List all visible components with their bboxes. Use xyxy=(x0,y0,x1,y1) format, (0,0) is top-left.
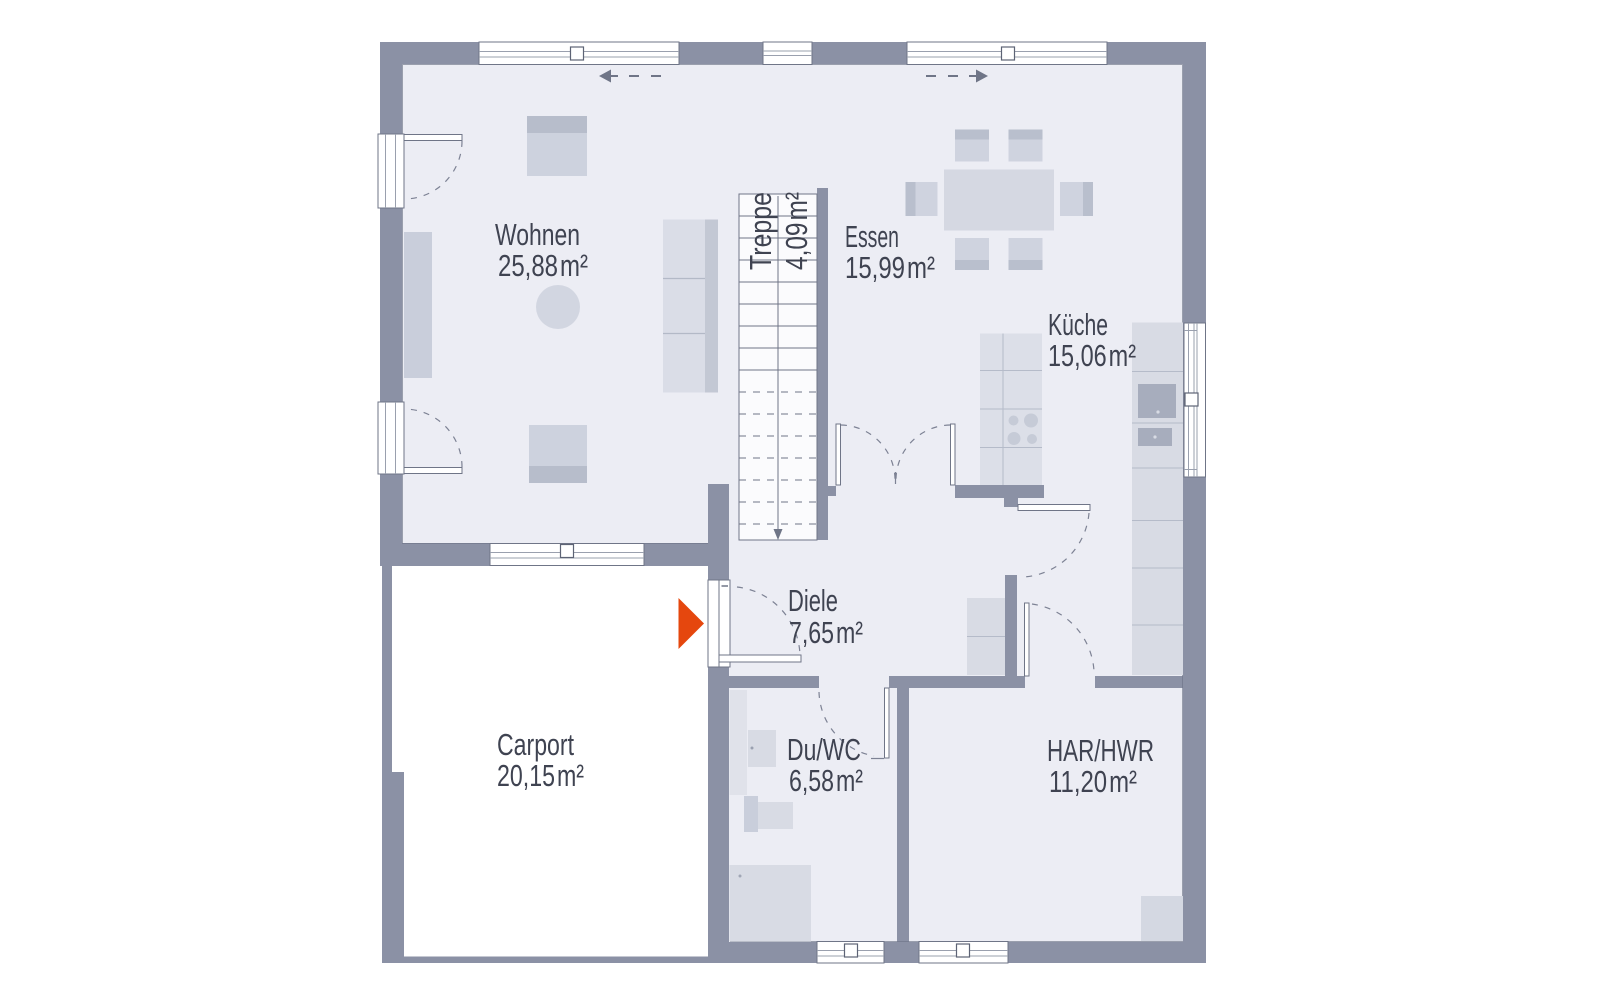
svg-text:HAR/HWR: HAR/HWR xyxy=(1047,733,1154,768)
svg-text:20,15 m²: 20,15 m² xyxy=(497,758,584,793)
svg-text:7,65 m²: 7,65 m² xyxy=(789,615,863,650)
svg-text:4,09 m²: 4,09 m² xyxy=(779,192,814,270)
svg-text:Treppe: Treppe xyxy=(743,192,778,270)
svg-text:25,88 m²: 25,88 m² xyxy=(498,248,588,283)
svg-text:Du/WC: Du/WC xyxy=(787,732,861,767)
svg-text:6,58 m²: 6,58 m² xyxy=(789,763,863,798)
svg-text:Diele: Diele xyxy=(788,583,838,618)
svg-text:11,20 m²: 11,20 m² xyxy=(1049,764,1137,799)
svg-text:15,99 m²: 15,99 m² xyxy=(845,250,935,285)
svg-text:Wohnen: Wohnen xyxy=(495,217,580,252)
svg-text:15,06 m²: 15,06 m² xyxy=(1048,338,1136,373)
svg-text:Küche: Küche xyxy=(1048,307,1108,342)
svg-text:Essen: Essen xyxy=(845,219,899,254)
svg-text:Carport: Carport xyxy=(497,727,574,762)
